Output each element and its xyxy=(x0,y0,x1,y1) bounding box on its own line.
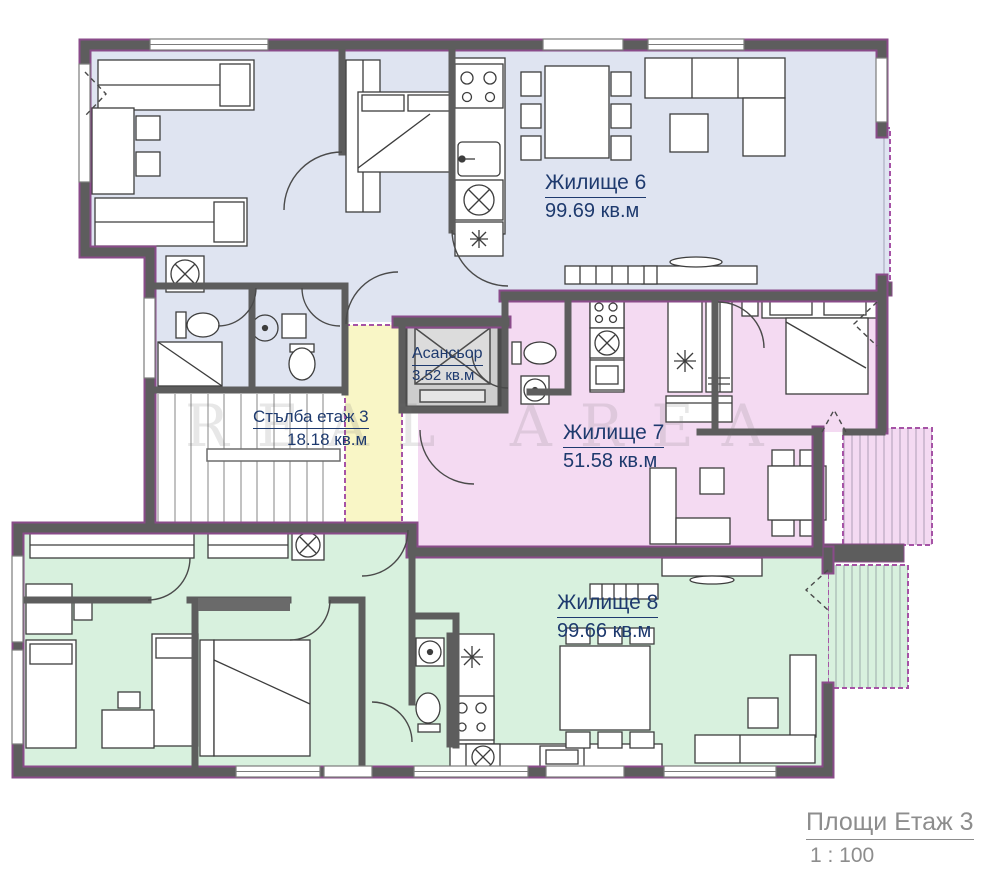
elevator-name: Асансьор xyxy=(412,344,483,366)
apt7-kitchen xyxy=(590,296,624,392)
tv-icon xyxy=(690,576,734,584)
apartment-7-area: 51.58 кв.м xyxy=(563,450,657,472)
stove-icon xyxy=(455,64,503,108)
tv-cabinet xyxy=(642,266,757,284)
apartment-8-area: 99.66 кв.м xyxy=(557,620,651,642)
stairs-label: Стълба етаж 3 18.18 кв.м xyxy=(253,406,369,451)
apartment-7-label: Жилище 7 51.58 кв.м xyxy=(563,420,664,475)
tv-cabinet xyxy=(662,558,762,576)
toilet-icon xyxy=(524,342,556,364)
apt6-kitchen xyxy=(453,58,505,256)
balcony-apartment-7 xyxy=(843,428,932,545)
stairs-name: Стълба етаж 3 xyxy=(253,406,369,429)
elevator-area: 3.52 кв.м xyxy=(412,367,474,384)
page-title: Площи Етаж 3 xyxy=(806,808,974,840)
apartment-8-name: Жилище 8 xyxy=(557,590,658,618)
apt7-closets xyxy=(668,296,732,392)
apt6-bedroom-furniture xyxy=(358,92,456,172)
floor-plan-page: REAL AREA Жилище 6 99.69 кв.м Жилище 7 5… xyxy=(0,0,1000,870)
apt8-dining-set xyxy=(560,628,654,748)
plan-scale: 1 : 100 xyxy=(806,844,974,868)
toilet-icon xyxy=(416,693,440,723)
tv-icon xyxy=(670,257,722,267)
master-wardrobe xyxy=(198,598,290,611)
toilet-icon xyxy=(187,313,219,337)
apt8-master-bedroom-furniture xyxy=(200,640,310,756)
apartment-6-name: Жилище 6 xyxy=(545,170,646,198)
apartment-6-label: Жилище 6 99.69 кв.м xyxy=(545,170,646,225)
apartment-8-label: Жилище 8 99.66 кв.м xyxy=(557,590,658,645)
apartment-7-name: Жилище 7 xyxy=(563,420,664,448)
apartment-6-area: 99.69 кв.м xyxy=(545,200,639,222)
apt6-dining-set xyxy=(521,66,631,160)
elevator-label: Асансьор 3.52 кв.м xyxy=(412,344,483,386)
stairs-area: 18.18 кв.м xyxy=(253,430,367,449)
radiator xyxy=(565,266,657,284)
toilet-icon xyxy=(289,348,315,380)
title-block: Площи Етаж 3 1 : 100 xyxy=(806,808,974,868)
